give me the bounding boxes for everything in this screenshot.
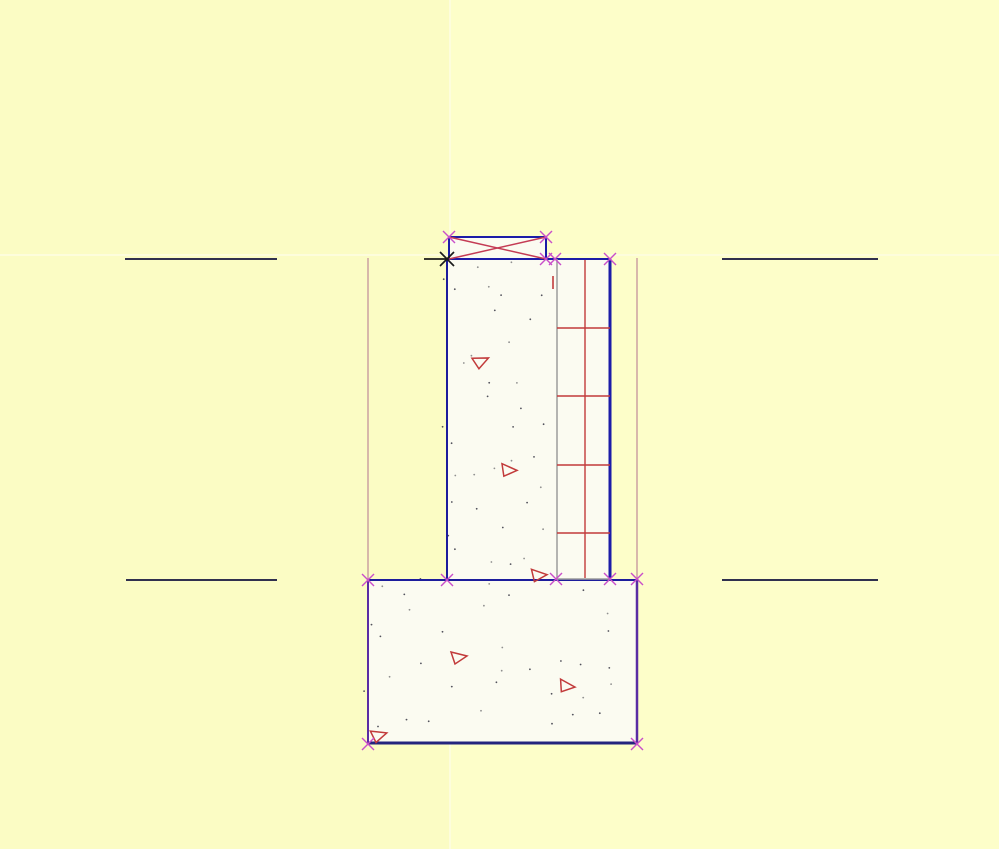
hatch-dot (608, 667, 610, 669)
hatch-dot (403, 594, 405, 596)
hatch-dot (508, 594, 510, 596)
hatch-dot (371, 624, 373, 626)
hatch-dot (572, 714, 574, 716)
hatch-dot (377, 726, 379, 728)
hatch-dot (510, 563, 512, 565)
hatch-dot (406, 719, 408, 721)
hatch-dot (428, 720, 430, 722)
hatch-dot (488, 382, 490, 384)
hatch-dot (511, 460, 513, 462)
hatch-dot (389, 676, 391, 678)
hatch-dot (471, 355, 473, 357)
hatch-dot (409, 609, 411, 611)
hatch-dot (488, 286, 490, 288)
hatch-dot (540, 486, 542, 488)
hatch-dot (551, 693, 553, 695)
hatch-dot (420, 663, 422, 665)
hatch-dot (542, 528, 544, 530)
cad-viewport (0, 0, 999, 849)
hatch-dot (454, 475, 456, 477)
hatch-dot (608, 630, 610, 632)
hatch-dot (463, 362, 465, 364)
hatch-dot (526, 502, 528, 504)
hatch-dot (494, 468, 496, 470)
hatch-dot (473, 474, 475, 476)
hatch-dot (443, 278, 445, 280)
hatch-dot (511, 261, 513, 263)
footing-body[interactable] (368, 580, 637, 744)
hatch-dot (451, 442, 453, 444)
hatch-dot (487, 396, 489, 398)
hatch-dot (502, 527, 504, 529)
hatch-dot (583, 589, 585, 591)
hatch-dot (560, 660, 562, 662)
hatch-dot (494, 310, 496, 312)
hatch-dot (488, 583, 490, 585)
hatch-dot (442, 631, 444, 633)
hatch-dot (380, 636, 382, 638)
hatch-dot (520, 408, 522, 410)
hatch-dot (501, 670, 503, 672)
hatch-dot (533, 456, 535, 458)
hatch-dot (476, 508, 478, 510)
hatch-dot (610, 683, 612, 685)
hatch-dot (491, 561, 493, 563)
hatch-dot (607, 613, 609, 615)
hatch-dot (363, 690, 365, 692)
hatch-dot (442, 426, 444, 428)
hatch-dot (599, 712, 601, 714)
hatch-dot (451, 686, 453, 688)
hatch-dot (543, 423, 545, 425)
hatch-dot (529, 318, 531, 320)
hatch-dot (512, 426, 514, 428)
hatch-dot (508, 341, 510, 343)
hatch-dot (541, 294, 543, 296)
hatch-dot (523, 558, 525, 560)
hatch-dot (483, 605, 485, 607)
hatch-dot (477, 266, 479, 268)
hatch-dot (580, 664, 582, 666)
hatch-dot (516, 382, 518, 384)
hatch-dot (496, 681, 498, 683)
hatch-dot (529, 668, 531, 670)
hatch-dot (454, 548, 456, 550)
hatch-dot (454, 288, 456, 290)
hatch-dot (500, 294, 502, 296)
hatch-dot (582, 697, 584, 699)
hatch-dot (501, 647, 503, 649)
drawing-canvas[interactable] (0, 0, 999, 849)
hatch-dot (551, 723, 553, 725)
hatch-dot (451, 501, 453, 503)
hatch-dot (480, 710, 482, 712)
hatch-dot (381, 585, 383, 587)
